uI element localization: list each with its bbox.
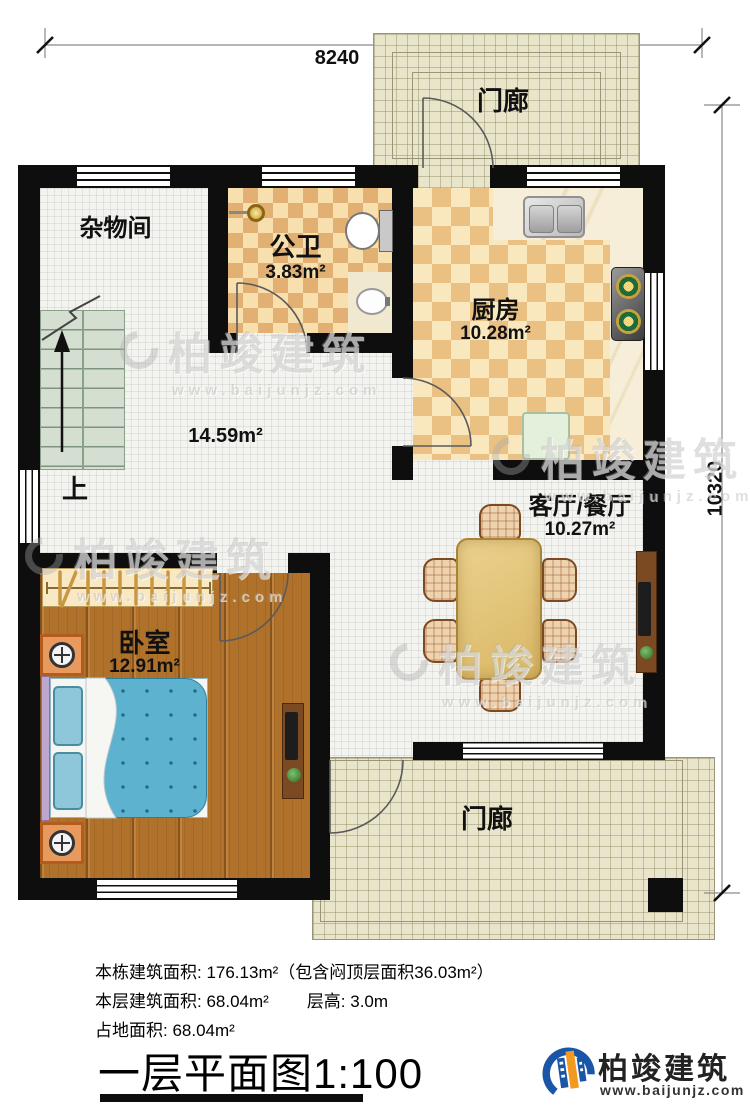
- stove-burner: [616, 309, 641, 334]
- room-area-bathroom: 3.83m²: [253, 263, 338, 283]
- note-floor-height: 层高: 3.0m: [307, 992, 388, 1011]
- toilet-bowl: [345, 212, 380, 250]
- nightstand-dial: [49, 642, 75, 668]
- pillow: [53, 686, 83, 746]
- room-area-living: 10.27m²: [515, 520, 645, 540]
- dining-chair: [423, 558, 458, 602]
- wall: [392, 165, 413, 378]
- pillow: [53, 752, 83, 810]
- porch-column: [648, 878, 683, 912]
- window: [527, 165, 620, 188]
- watermark: 柏竣建筑 www.baijunjz.com: [25, 524, 286, 605]
- window: [463, 742, 603, 760]
- tv-icon: [638, 582, 651, 636]
- toilet-tank: [379, 210, 393, 252]
- room-label-storage: 杂物间: [58, 216, 173, 241]
- porch-doorway-patch: [418, 165, 490, 188]
- room-label-kitchen: 厨房: [448, 298, 543, 323]
- brand-logo-icon: [540, 1038, 596, 1102]
- note-floor-area: 本层建筑面积: 68.04m²层高: 3.0m: [95, 987, 388, 1012]
- stove-burner: [616, 274, 641, 299]
- room-label-porch-bottom: 门廊: [432, 806, 542, 833]
- watermark-logo-icon: [112, 323, 165, 376]
- note-floor-area-value: 本层建筑面积: 68.04m²: [95, 992, 269, 1011]
- watermark-logo-icon: [17, 529, 70, 582]
- window: [77, 165, 170, 188]
- window: [97, 878, 237, 900]
- stairs-up-label: 上: [53, 476, 97, 503]
- floor-plan: 8240 10320 门廊 杂物间 公卫 3.83m² 厨房 10.28m² 1…: [0, 0, 750, 1113]
- room-label-bedroom: 卧室: [102, 630, 187, 657]
- plant-icon: [287, 768, 301, 782]
- window: [262, 165, 355, 188]
- watermark: 柏竣建筑 www.baijunjz.com: [120, 318, 381, 399]
- wall: [643, 165, 665, 273]
- sink-basin: [557, 205, 582, 233]
- shower-arm: [229, 211, 249, 214]
- porch-bottom-step: [320, 760, 683, 922]
- dining-chair: [542, 558, 577, 602]
- bed-headboard: [41, 676, 50, 821]
- note-footprint-area: 占地面积: 68.04m²: [95, 1016, 235, 1041]
- watermark: 柏竣建筑 www.baijunjz.com: [390, 630, 651, 711]
- wall: [18, 878, 97, 900]
- page-title: 一层平面图1:100: [98, 1040, 423, 1101]
- porch-bottom: [312, 757, 715, 940]
- watermark: 柏竣建筑 www.baijunjz.com: [492, 424, 750, 505]
- room-label-porch-top: 门廊: [448, 88, 558, 115]
- room-area-kitchen: 10.28m²: [448, 324, 543, 344]
- basin-tap: [385, 297, 390, 306]
- wall: [603, 742, 665, 760]
- window: [643, 273, 665, 370]
- dimension-top: 8240: [303, 47, 371, 70]
- sink-basin: [529, 205, 554, 233]
- tv-icon: [285, 712, 298, 760]
- wall: [18, 165, 40, 470]
- room-label-bathroom: 公卫: [253, 234, 338, 261]
- note-total-area: 本栋建筑面积: 176.13m²（包含闷顶层面积36.03m²）: [95, 958, 494, 983]
- gas-stove: [611, 267, 645, 341]
- shower-head-icon: [247, 204, 265, 222]
- brand-logo: 柏竣建筑 www.baijunjz.com: [540, 1038, 745, 1104]
- watermark-logo-icon: [484, 429, 537, 482]
- wall: [490, 165, 527, 188]
- watermark-logo-icon: [382, 635, 435, 688]
- wash-basin: [356, 288, 388, 315]
- nightstand-dial: [49, 830, 75, 856]
- title-underline: [100, 1094, 363, 1102]
- bed-duvet: [86, 678, 207, 818]
- wall: [413, 742, 463, 760]
- kitchen-sink: [523, 196, 585, 238]
- wall: [310, 553, 330, 900]
- staircase-divider: [82, 310, 84, 470]
- room-area-bedroom: 12.91m²: [102, 657, 187, 677]
- brand-logo-site: www.baijunjz.com: [600, 1082, 745, 1098]
- wall: [288, 553, 310, 573]
- room-area-hall: 14.59m²: [168, 426, 283, 447]
- wall: [392, 446, 413, 480]
